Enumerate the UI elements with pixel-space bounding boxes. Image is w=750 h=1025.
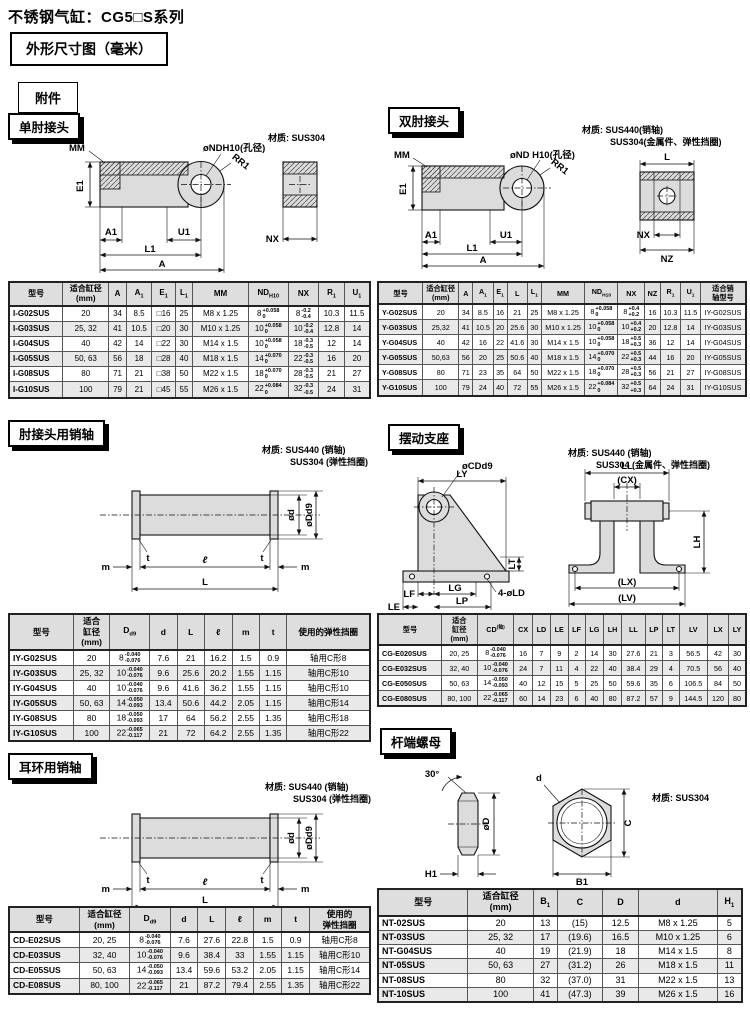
value-cell: 14	[344, 322, 370, 337]
label-l-big: L	[202, 577, 208, 588]
value-cell: 20	[493, 320, 507, 335]
value-cell: 20	[468, 916, 533, 931]
table-row: Y-G10SUS1007924407255M26 x 1.522+0.08403…	[378, 380, 746, 396]
model-cell: Y-G02SUS	[378, 304, 423, 320]
value-cell: □16	[152, 306, 175, 322]
label-d-big: øD	[481, 818, 492, 831]
column-header: Dd9	[110, 614, 150, 650]
value-cell: 32-0.3-0.5	[288, 382, 318, 398]
label-u1: U1	[500, 230, 513, 241]
model-cell: I-G04SUS	[9, 337, 63, 352]
table-row: CG-E050SUS50, 6314-0.050-0.0934012155255…	[378, 676, 746, 691]
label-rr1: RR1	[230, 152, 252, 173]
value-cell: 8+0.0580	[585, 304, 618, 320]
value-cell: 轴用C形14	[287, 696, 370, 711]
value-cell: 84	[708, 676, 729, 691]
column-header: 适合缸径(mm)	[423, 282, 459, 304]
table-row: IY-G03SUS25, 3210-0.040-0.0769.625.620.2…	[9, 665, 370, 680]
value-cell: 15	[550, 676, 568, 691]
value-cell: 8+0.0580	[248, 306, 288, 322]
value-cell: 8	[717, 945, 742, 959]
value-cell: 30	[527, 320, 541, 335]
column-header: LH	[604, 614, 622, 645]
value-cell: 20	[344, 352, 370, 367]
value-cell: 71	[459, 365, 473, 380]
value-cell: 18+0.0700	[585, 365, 618, 380]
value-cell: 0.9	[259, 650, 286, 666]
column-header: NX	[288, 282, 318, 306]
column-header: 适合缸径(mm)	[468, 889, 533, 916]
value-cell: 44.2	[205, 696, 232, 711]
value-cell: 80, 100	[441, 691, 477, 707]
header-row: 型号适合缸径(mm)Dd9dLℓmt使用的弹性挡圈	[9, 614, 370, 650]
table-row: NT-03SUS25, 3217(19.6)16.5M10 x 1.256	[378, 930, 742, 944]
value-cell: 80	[63, 367, 109, 382]
value-cell: 14	[344, 337, 370, 352]
value-cell: 36.2	[205, 681, 232, 696]
column-header: NZ	[645, 282, 661, 304]
value-cell: 25, 32	[73, 665, 110, 680]
value-cell: 17	[533, 930, 557, 944]
model-cell: NT-05SUS	[378, 959, 468, 973]
column-header: L1	[175, 282, 192, 306]
column-header: R1	[319, 282, 345, 306]
value-cell: 21	[645, 645, 663, 661]
value-cell: 1.15	[282, 948, 310, 963]
column-header: 适合销轴型号	[700, 282, 746, 304]
value-cell: 50,63	[423, 350, 459, 365]
value-cell: 20	[73, 650, 110, 666]
value-cell: 1.35	[259, 726, 286, 742]
column-header: 使用的弹性挡圈	[310, 907, 370, 932]
model-cell: IY-G03SUS	[9, 665, 73, 680]
value-cell: 25	[175, 306, 192, 322]
column-header: 适合缸径(mm)	[79, 907, 130, 932]
value-cell: 9	[663, 691, 679, 707]
value-cell: 22+0.0840	[248, 382, 288, 398]
model-cell: I-G08SUS	[9, 367, 63, 382]
value-cell: 24	[473, 380, 493, 396]
label-c: C	[623, 819, 634, 826]
table-row: IY-G10SUS10022-0.065-0.117217264.22.551.…	[9, 726, 370, 742]
model-cell: Y-G04SUS	[378, 335, 423, 350]
value-cell: 1.55	[254, 948, 282, 963]
column-header: L	[177, 614, 204, 650]
value-cell: 8-0.040-0.076	[110, 650, 150, 666]
value-cell: M10 x 1.25	[541, 320, 584, 335]
value-cell: 12.5	[603, 916, 639, 931]
column-header: 型号	[9, 907, 79, 932]
value-cell: 14-0.050-0.093	[110, 696, 150, 711]
table-row: Y-G03SUS25,324110.52025.630M10 x 1.2510+…	[378, 320, 746, 335]
value-cell: 32, 40	[79, 948, 130, 963]
value-cell: 8+0.4+0.2	[618, 304, 645, 320]
material-line: SUS304 (弹性挡圈)	[262, 456, 368, 468]
value-cell: 34	[459, 304, 473, 320]
model-cell: IY-G08SUS	[9, 711, 73, 726]
clevis-pin-table: 型号适合缸径(mm)Dd9dLℓmt使用的弹性挡圈CD-E02SUS20, 25…	[8, 906, 371, 995]
value-cell: 30	[527, 335, 541, 350]
value-cell: 55	[527, 380, 541, 396]
column-header: L	[507, 282, 527, 304]
value-cell: 2.05	[232, 696, 259, 711]
value-cell: 21	[170, 978, 198, 994]
value-cell: 100	[468, 987, 533, 1002]
label-lf: LF	[403, 589, 415, 600]
label-cx: (CX)	[617, 475, 637, 486]
value-cell: M26 x 1.5	[638, 987, 717, 1002]
value-cell: M8 x 1.25	[193, 306, 249, 322]
value-cell: 轴用C形8	[310, 932, 370, 948]
value-cell: 31	[603, 973, 639, 987]
value-cell: □45	[152, 382, 175, 398]
value-cell: 1.5	[254, 932, 282, 948]
label-a1: A1	[105, 227, 118, 238]
table-row: CD-E05SUS50, 6314-0.050-0.09313.459.653.…	[9, 963, 370, 978]
model-cell: CG-E032SUS	[378, 661, 441, 676]
model-cell: CD-E08SUS	[9, 978, 79, 994]
value-cell: 13.4	[150, 696, 177, 711]
column-header: LV	[679, 614, 707, 645]
label-nd: øNDH10(孔径)	[203, 142, 265, 154]
value-cell: (47.3)	[557, 987, 602, 1002]
outline-dimensions-box: 外形尺寸图（毫米）	[10, 32, 168, 66]
value-cell: 1.55	[232, 665, 259, 680]
value-cell: 24	[660, 380, 680, 396]
value-cell: (21.9)	[557, 945, 602, 959]
value-cell: 50, 63	[63, 352, 109, 367]
value-cell: M8 x 1.25	[541, 304, 584, 320]
value-cell: 18-0.3-0.5	[288, 337, 318, 352]
label-lt: LT	[507, 558, 518, 569]
value-cell: M18 x 1.5	[638, 959, 717, 973]
table-row: CD-E08SUS80, 10022-0.065-0.1172187.279.4…	[9, 978, 370, 994]
model-cell: IY-G10SUS	[9, 726, 73, 742]
value-cell: 32	[533, 973, 557, 987]
value-cell: 10-0.2-0.4	[288, 322, 318, 337]
value-cell: 16	[660, 350, 680, 365]
value-cell: 2.55	[254, 978, 282, 994]
value-cell: M22 x 1.5	[541, 365, 584, 380]
value-cell: M26 x 1.5	[193, 382, 249, 398]
value-cell: 20, 25	[79, 932, 130, 948]
value-cell: 50.6	[507, 350, 527, 365]
value-cell: 100	[423, 380, 459, 396]
rod-end-nut-table: 型号适合缸径(mm)B1CDdH1NT-02SUS2013(15)12.5M8 …	[377, 888, 743, 1003]
model-cell: I-G03SUS	[9, 322, 63, 337]
value-cell: 79.4	[226, 978, 254, 994]
value-cell: 41	[459, 320, 473, 335]
value-cell: 22+0.0840	[585, 380, 618, 396]
value-cell: 轴用C形8	[287, 650, 370, 666]
table-row: NT-02SUS2013(15)12.5M8 x 1.255	[378, 916, 742, 931]
column-header: 适合缸径(mm)	[73, 614, 110, 650]
label-t: t	[146, 875, 150, 886]
value-cell: 21	[319, 367, 345, 382]
value-cell: 64.2	[205, 726, 232, 742]
value-cell: 29	[645, 661, 663, 676]
value-cell: 18-0.050-0.093	[110, 711, 150, 726]
value-cell: 6	[568, 691, 585, 707]
label-e1: E1	[398, 182, 409, 194]
label-le: LE	[388, 602, 400, 613]
label-lv: (LV)	[618, 593, 636, 604]
value-cell: 40	[604, 661, 622, 676]
value-cell: 17	[150, 711, 177, 726]
value-cell: 7.6	[150, 650, 177, 666]
column-header: 适合缸径(mm)	[441, 614, 477, 645]
value-cell: 64	[645, 380, 661, 396]
value-cell: 轴用C形14	[310, 963, 370, 978]
value-cell: 40	[729, 661, 746, 676]
label-nd: øND H10(孔径)	[510, 149, 575, 161]
label-l-big: L	[202, 895, 208, 906]
value-cell: 12.8	[660, 320, 680, 335]
column-header: LD	[532, 614, 550, 645]
value-cell: 24	[319, 382, 345, 398]
section-heading-knuckle-pin: 肘接头用销轴	[8, 420, 105, 447]
material-note: 材质: SUS304	[652, 792, 709, 804]
value-cell: 20	[681, 350, 701, 365]
knuckle-pin-table: 型号适合缸径(mm)Dd9dLℓmt使用的弹性挡圈IY-G02SUS208-0.…	[8, 613, 371, 742]
value-cell: 10.5	[126, 322, 152, 337]
label-d: d	[536, 773, 542, 784]
value-cell: 轴用C形22	[287, 726, 370, 742]
column-header: B1	[533, 889, 557, 916]
value-cell: 22+0.5+0.3	[618, 350, 645, 365]
column-header: LY	[729, 614, 746, 645]
column-header: MM	[193, 282, 249, 306]
accessories-box: 附件	[18, 82, 78, 113]
value-cell: 25	[493, 350, 507, 365]
value-cell: IY-G02SUS	[700, 304, 746, 320]
column-header: L1	[527, 282, 541, 304]
value-cell: 8-0.040-0.076	[477, 645, 514, 661]
label-nx: NX	[266, 234, 280, 245]
value-cell: IY-G08SUS	[700, 365, 746, 380]
value-cell: 10+0.4+0.2	[618, 320, 645, 335]
column-header: A	[109, 282, 126, 306]
value-cell: 50	[175, 367, 192, 382]
column-header: CD(轴)	[477, 614, 514, 645]
value-cell: 22	[585, 661, 604, 676]
value-cell: 18	[603, 945, 639, 959]
label-l1: L1	[144, 244, 156, 255]
value-cell: 33	[226, 948, 254, 963]
material-line: SUS304(金属件、弹性挡圈)	[582, 136, 722, 148]
value-cell: 13	[717, 973, 742, 987]
table-row: NT-G04SUS4019(21.9)18M14 x 1.58	[378, 945, 742, 959]
column-header: ℓ	[226, 907, 254, 932]
value-cell: IY-G10SUS	[700, 380, 746, 396]
value-cell: 18+0.5+0.3	[618, 335, 645, 350]
value-cell: 16	[645, 304, 661, 320]
value-cell: 38.4	[622, 661, 646, 676]
column-header: 型号	[378, 282, 423, 304]
value-cell: 14	[681, 335, 701, 350]
table-row: CD-E02SUS20, 258-0.040-0.0767.627.622.81…	[9, 932, 370, 948]
label-m: m	[102, 884, 110, 895]
label-h1: H1	[425, 869, 438, 880]
value-cell: 10.5	[473, 320, 493, 335]
value-cell: 31	[344, 382, 370, 398]
value-cell: M18 x 1.5	[193, 352, 249, 367]
value-cell: IY-G05SUS	[700, 350, 746, 365]
value-cell: 20	[423, 304, 459, 320]
table-row: IY-G04SUS4010-0.040-0.0769.641.636.21.55…	[9, 681, 370, 696]
column-header: d	[170, 907, 198, 932]
value-cell: 50, 63	[73, 696, 110, 711]
model-cell: NT-08SUS	[378, 973, 468, 987]
value-cell: 0.9	[282, 932, 310, 948]
model-cell: CG-E050SUS	[378, 676, 441, 691]
value-cell: M14 x 1.5	[541, 335, 584, 350]
value-cell: 80	[468, 973, 533, 987]
value-cell: 18+0.0700	[248, 367, 288, 382]
value-cell: M22 x 1.5	[638, 973, 717, 987]
model-cell: I-G05SUS	[9, 352, 63, 367]
value-cell: 14-0.050-0.093	[477, 676, 514, 691]
section-heading-double-knuckle: 双肘接头	[388, 107, 460, 134]
label-t: t	[260, 553, 264, 564]
table-row: Y-G02SUS20348.5162125M8 x 1.258+0.05808+…	[378, 304, 746, 320]
label-lh: LH	[692, 536, 703, 549]
value-cell: 20	[473, 350, 493, 365]
column-header: d	[638, 889, 717, 916]
column-header: E1	[493, 282, 507, 304]
value-cell: 25, 32	[63, 322, 109, 337]
value-cell: 40	[73, 681, 110, 696]
column-header: A1	[473, 282, 493, 304]
value-cell: 1.15	[259, 681, 286, 696]
value-cell: 21	[660, 365, 680, 380]
table-row: IY-G05SUS50, 6314-0.050-0.09313.450.644.…	[9, 696, 370, 711]
column-header: 型号	[9, 282, 63, 306]
value-cell: 41	[533, 987, 557, 1002]
label-lg: LG	[448, 583, 461, 594]
model-cell: IY-G04SUS	[9, 681, 73, 696]
value-cell: 25,32	[423, 320, 459, 335]
label-ld: 4-øLD	[498, 588, 525, 599]
column-header: 型号	[378, 889, 468, 916]
label-l: L	[664, 152, 670, 163]
value-cell: 87.2	[198, 978, 226, 994]
value-cell: 2.55	[232, 726, 259, 742]
value-cell: 16	[473, 335, 493, 350]
value-cell: 26	[603, 959, 639, 973]
value-cell: 轴用C形18	[287, 711, 370, 726]
header-row: 型号适合缸径(mm)B1CDdH1	[378, 889, 742, 916]
label-dd9: øDd9	[304, 826, 315, 850]
table-row: Y-G05SUS50,6356202550.640M18 x 1.514+0.0…	[378, 350, 746, 365]
value-cell: 35	[493, 365, 507, 380]
value-cell: 20, 25	[441, 645, 477, 661]
value-cell: 30	[175, 322, 192, 337]
column-header: LP	[645, 614, 663, 645]
value-cell: 36	[645, 335, 661, 350]
value-cell: 42	[109, 337, 126, 352]
column-header: D	[603, 889, 639, 916]
label-ll: LL	[621, 461, 633, 472]
knuckle-pin-drawing: ød øDd9 t t ℓ m m L	[85, 470, 337, 602]
label-a: A	[480, 255, 487, 266]
value-cell: 10-0.040-0.076	[110, 681, 150, 696]
trunnion-table: 型号适合缸径(mm)CD(轴)CXLDLELFLGLHLLLPLTLVLXLYC…	[377, 613, 747, 707]
value-cell: 8-0.040-0.076	[130, 932, 170, 948]
value-cell: 50	[604, 676, 622, 691]
table-row: CG-E032SUS32, 4010-0.040-0.0762471142240…	[378, 661, 746, 676]
table-row: CG-E020SUS20, 258-0.040-0.07616792143027…	[378, 645, 746, 661]
value-cell: 9.6	[150, 681, 177, 696]
value-cell: 10-0.040-0.076	[130, 948, 170, 963]
value-cell: M14 x 1.5	[638, 945, 717, 959]
value-cell: 1.35	[259, 711, 286, 726]
column-header: 型号	[378, 614, 441, 645]
model-cell: Y-G10SUS	[378, 380, 423, 396]
value-cell: 42	[708, 645, 729, 661]
column-header: 使用的弹性挡圈	[287, 614, 370, 650]
value-cell: 30	[604, 645, 622, 661]
value-cell: 50, 63	[79, 963, 130, 978]
value-cell: 21	[126, 367, 152, 382]
value-cell: 轴用C形22	[310, 978, 370, 994]
label-nz: NZ	[661, 254, 674, 265]
label-nx: NX	[637, 230, 651, 241]
value-cell: 22	[493, 335, 507, 350]
value-cell: 60	[514, 691, 533, 707]
label-mm: MM	[69, 143, 85, 154]
model-cell: Y-G03SUS	[378, 320, 423, 335]
value-cell: 40	[527, 350, 541, 365]
value-cell: 3	[663, 645, 679, 661]
value-cell: 9	[550, 645, 568, 661]
value-cell: (19.6)	[557, 930, 602, 944]
value-cell: 50	[527, 365, 541, 380]
single-knuckle-table: 型号适合缸径(mm)AA1E1L1MMNDH10NXR1U1I-G02SUS20…	[8, 281, 371, 399]
value-cell: 56	[645, 365, 661, 380]
value-cell: 42	[459, 335, 473, 350]
value-cell: 1.5	[232, 650, 259, 666]
column-header: t	[282, 907, 310, 932]
value-cell: 2	[568, 645, 585, 661]
label-a: A	[159, 259, 166, 270]
value-cell: 79	[459, 380, 473, 396]
column-header: LL	[622, 614, 646, 645]
value-cell: 19	[533, 945, 557, 959]
column-header: E1	[152, 282, 175, 306]
label-l-small: ℓ	[203, 877, 208, 888]
header-row: 型号适合缸径(mm)AA1E1LL1MMNDH10NXNZR1U1适合销轴型号	[378, 282, 746, 304]
column-header: A1	[126, 282, 152, 306]
column-header: MM	[541, 282, 584, 304]
value-cell: 50	[729, 676, 746, 691]
value-cell: 11.5	[344, 306, 370, 322]
model-cell: IY-G02SUS	[9, 650, 73, 666]
value-cell: 72	[507, 380, 527, 396]
column-header: CX	[514, 614, 533, 645]
column-header: H1	[717, 889, 742, 916]
table-row: NT-08SUS8032(37.0)31M22 x 1.513	[378, 973, 742, 987]
value-cell: 7	[532, 645, 550, 661]
value-cell: 2.55	[232, 711, 259, 726]
model-cell: NT-03SUS	[378, 930, 468, 944]
value-cell: 80, 100	[79, 978, 130, 994]
value-cell: 100	[73, 726, 110, 742]
value-cell: 16.5	[603, 930, 639, 944]
model-cell: IY-G05SUS	[9, 696, 73, 711]
value-cell: 50, 63	[441, 676, 477, 691]
material-line: 材质: SUS440 (销轴)	[262, 444, 368, 456]
